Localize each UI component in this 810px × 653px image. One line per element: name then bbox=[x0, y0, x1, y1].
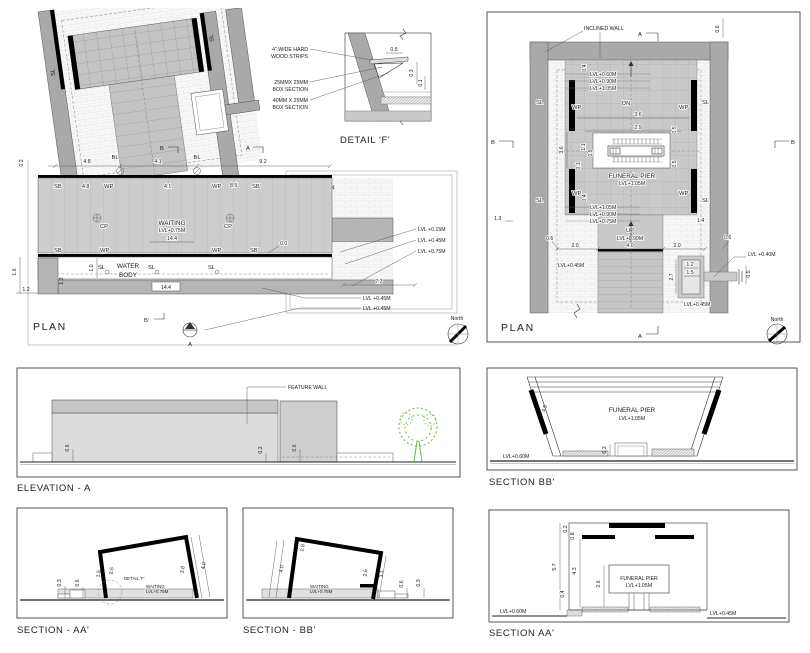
inner-wall-black bbox=[691, 80, 697, 131]
level-label: LVL+0.45M bbox=[558, 263, 584, 269]
level-label: LVL +0.40M bbox=[748, 252, 776, 258]
column-label: BL bbox=[193, 155, 201, 161]
dim-label: 2.6 bbox=[109, 567, 116, 575]
zone-label: BODY bbox=[119, 272, 138, 279]
dim-label: 4.1 bbox=[154, 159, 161, 165]
dim-label: 0.2 bbox=[19, 159, 25, 166]
section-marker-b-left: B bbox=[491, 140, 513, 148]
dim-label: 0.6 bbox=[292, 444, 298, 451]
entry-stairs bbox=[598, 250, 663, 313]
level-label: LVL+1.05M bbox=[619, 181, 645, 187]
note-label: DETAIL 'F' bbox=[124, 576, 145, 581]
dim-label: 0.4 bbox=[582, 64, 588, 71]
roof-lines bbox=[527, 377, 723, 392]
section-aa-view: FUNERAL PIER LVL+1.05M LVL+0.60M LVL+0.4… bbox=[489, 510, 789, 639]
marker-label: B bbox=[491, 140, 495, 146]
dim-label: 0.5 bbox=[390, 47, 397, 53]
elevation-a-view: 0.6 0.3 0.6 FEATURE WALL ELEVATION - A bbox=[17, 368, 460, 494]
feature-wall-block bbox=[280, 401, 337, 462]
dim-label: 3.6 bbox=[634, 112, 641, 118]
level-label: LVL+0.60M bbox=[503, 454, 529, 460]
dim-label: 1.2 bbox=[59, 277, 65, 284]
section-marker-a-bottom: A bbox=[183, 322, 197, 348]
dim-label: 0.3 bbox=[409, 69, 415, 76]
dim-label: 4.0 bbox=[200, 562, 207, 570]
north-label: North bbox=[451, 316, 464, 322]
view-title: ELEVATION - A bbox=[17, 483, 91, 494]
view-title: DETAIL 'F' bbox=[340, 135, 390, 146]
level-label: LVL+0.45M bbox=[684, 302, 710, 308]
level-label: LVL+1.05M bbox=[626, 583, 652, 589]
view-title: SECTION AA' bbox=[489, 628, 554, 639]
dim-label: 0.9 bbox=[588, 149, 594, 156]
left-block bbox=[38, 258, 58, 294]
dim-label: 0.5 bbox=[746, 270, 752, 277]
step bbox=[395, 594, 408, 598]
north-compass: North bbox=[767, 317, 787, 344]
pier-leg bbox=[644, 593, 649, 610]
step bbox=[567, 610, 582, 616]
note-label: 40MM X 25MM bbox=[273, 98, 308, 104]
dim-label: 1.5 bbox=[96, 570, 103, 578]
beam-black-right bbox=[655, 535, 694, 539]
zone-label: FUNERAL PIER bbox=[609, 407, 656, 414]
inclined-wall-section bbox=[348, 33, 392, 121]
slab-right bbox=[332, 218, 393, 242]
floor-slab bbox=[345, 111, 431, 121]
dim-label: 4.8 bbox=[82, 184, 89, 190]
dim-label: 0.6 bbox=[724, 235, 731, 241]
floor-slab-right bbox=[652, 449, 694, 456]
level-label: LVL+0.90M bbox=[590, 79, 616, 85]
zone-label: FUNERAL PIER bbox=[620, 576, 658, 582]
dim-label: 0.4 bbox=[582, 194, 588, 201]
dim-label: 0.3 bbox=[57, 579, 63, 586]
break-mark bbox=[400, 29, 406, 125]
view-title: PLAN bbox=[33, 321, 67, 333]
zone-label: DN bbox=[622, 101, 630, 107]
dim-label: 14.4 bbox=[167, 236, 177, 242]
dim-label: 1.4 bbox=[697, 218, 704, 224]
zone-label: WP bbox=[212, 248, 221, 254]
zone-label: CP bbox=[224, 224, 232, 230]
tilted-structure: SL SL bbox=[38, 0, 269, 204]
zone-label: SB' bbox=[250, 248, 259, 254]
zone-label: SL bbox=[208, 265, 216, 271]
level-label: LVL+0.75M bbox=[159, 228, 185, 234]
dim-label: 3.8 bbox=[179, 566, 186, 574]
dim-label: 2.7 bbox=[669, 273, 675, 280]
zone-label: SL bbox=[702, 198, 710, 204]
zone-label: SL bbox=[148, 265, 156, 271]
note-label: BOX SECTION bbox=[273, 105, 309, 111]
dim-label: 9.2 bbox=[259, 159, 266, 165]
elevation-body bbox=[52, 413, 278, 462]
level-label: LVL +0.75M bbox=[418, 249, 446, 255]
left-inclined-wall bbox=[527, 377, 561, 456]
elevation-roof-band bbox=[52, 400, 278, 413]
inner-wall-black bbox=[691, 169, 697, 213]
view-title: PLAN bbox=[501, 322, 535, 334]
level-label: LVL+1.05M bbox=[619, 416, 645, 422]
floor-slab bbox=[582, 607, 628, 612]
dim-label: 0.0 bbox=[280, 241, 287, 247]
marker-label: A bbox=[188, 342, 192, 348]
drawing-sheet: SL SL 4.8 4.1 9.2 BL BL 0.2 B A bbox=[0, 0, 810, 653]
wall-black-bottom bbox=[38, 254, 332, 257]
dim-label: 2.0 bbox=[673, 243, 680, 249]
zone-label: SB bbox=[54, 248, 62, 254]
zone-label: WP bbox=[572, 105, 581, 111]
level-label: LVL +0.45M bbox=[363, 306, 391, 312]
dim-label: 3.6 bbox=[559, 146, 565, 153]
dim-label: 0.6 bbox=[715, 25, 721, 32]
dim-label: 0.6 bbox=[399, 580, 405, 587]
seat-detail bbox=[360, 584, 374, 588]
marker-label: A bbox=[638, 32, 642, 38]
dim-label: 0.6 bbox=[65, 444, 71, 451]
panel-border bbox=[243, 508, 453, 618]
zone-label: SB' bbox=[252, 184, 261, 190]
note-label: 4" WIDE HARD bbox=[272, 47, 308, 53]
zone-label: WATER bbox=[117, 263, 140, 270]
dim-label: 0.8 bbox=[300, 544, 307, 552]
zone-label: SL bbox=[702, 100, 710, 106]
dim-label: 4.5 bbox=[541, 404, 549, 413]
step bbox=[70, 590, 85, 598]
plan-left-view: SL SL 4.8 4.1 9.2 BL BL 0.2 B A bbox=[12, 0, 468, 348]
level-label: LVL+0.75M bbox=[146, 589, 169, 594]
dim-label: 2.0 bbox=[571, 243, 578, 249]
marker-label: A bbox=[638, 334, 642, 340]
low-platform bbox=[337, 453, 393, 462]
funeral-pier-plan bbox=[593, 133, 670, 168]
dim-label: 2.6 bbox=[363, 569, 370, 577]
dim-label: 0.5 bbox=[672, 126, 678, 133]
detail-f-view: 0.5 0.3 0.1 4" WIDE HARD WOOD STRIPS 25M… bbox=[271, 29, 431, 146]
step bbox=[58, 594, 70, 598]
level-label: LVL+0.45M bbox=[710, 611, 736, 617]
bottom-slab bbox=[58, 280, 393, 294]
dim-label: 1.3 bbox=[494, 216, 501, 222]
zone-label: WP bbox=[572, 191, 581, 197]
north-label: North bbox=[771, 317, 784, 323]
section-aa-small-view: DETAIL 'F' WAITING LVL+0.75M 0.3 0.6 1.5… bbox=[17, 508, 227, 636]
zone-label: WP bbox=[212, 184, 221, 190]
dim-label: 0.2 bbox=[563, 525, 569, 532]
plan-right-view: LVL+0.60M LVL+0.90M LVL+1.05M 0.4 DN SL … bbox=[487, 12, 800, 344]
left-step bbox=[33, 453, 52, 462]
dim-label: 1.1 bbox=[581, 143, 587, 150]
note-label: FEATURE WALL bbox=[288, 385, 327, 391]
note-label: INCLINED WALL bbox=[584, 26, 624, 32]
marker-label: A bbox=[246, 146, 250, 152]
view-title: SECTION - BB' bbox=[243, 625, 316, 636]
zone-label: FUNERAL PIER bbox=[609, 173, 656, 180]
pier-leg bbox=[629, 593, 634, 610]
zone-label: WP bbox=[679, 191, 688, 197]
marker-label: B' bbox=[144, 318, 149, 324]
view-title: SECTION - AA' bbox=[17, 625, 89, 636]
dim-label: 14.4 bbox=[161, 285, 171, 291]
tree bbox=[399, 408, 437, 462]
zone-label: SL bbox=[536, 198, 544, 204]
level-label: LVL+0.75M bbox=[590, 219, 616, 225]
dim-label: 7.3 bbox=[375, 279, 382, 285]
outer-wall-top bbox=[530, 42, 728, 60]
dim-label: 1.2 bbox=[686, 262, 693, 268]
zone-label: SL bbox=[536, 100, 544, 106]
wall-black-top bbox=[38, 175, 332, 178]
level-label: LVL+0.60M bbox=[590, 72, 616, 78]
dim-label: 0.3 bbox=[602, 446, 608, 453]
roof-opening-black bbox=[609, 523, 665, 528]
level-label: LVL+1.05M bbox=[590, 205, 616, 211]
right-wall-black bbox=[704, 390, 719, 434]
water-body bbox=[38, 257, 332, 279]
dim-label: 2.6 bbox=[596, 580, 602, 587]
stair-top-edge bbox=[598, 249, 663, 252]
zone-label: WP bbox=[679, 105, 688, 111]
dim-label: 1.6 bbox=[12, 268, 18, 275]
paving bbox=[332, 242, 393, 280]
zone-label: WP bbox=[104, 184, 113, 190]
level-label: LVL+1.05M bbox=[590, 86, 616, 92]
dim-label: 0.5 bbox=[672, 160, 678, 167]
column-label: BL bbox=[111, 155, 119, 161]
level-label: LVL +0.45M bbox=[418, 238, 446, 244]
zone-label: WAITING bbox=[158, 220, 185, 227]
dim-label: 0.3 bbox=[258, 446, 264, 453]
dim-label: 4.0 bbox=[626, 243, 633, 249]
level-label: LVL+0.90M bbox=[617, 236, 643, 242]
section-marker-b-bottom: B' bbox=[144, 313, 164, 324]
marker-label: B bbox=[791, 140, 795, 146]
level-label: LVL +0.15M bbox=[418, 227, 446, 233]
dim-label: 0.6 bbox=[75, 579, 81, 586]
outer-wall-left bbox=[530, 42, 548, 313]
note-label: BOX SECTION bbox=[273, 87, 309, 93]
section-marker-a-bottom: A bbox=[638, 326, 658, 340]
dim-label: 0.4 bbox=[560, 590, 566, 597]
view-title: SECTION BB' bbox=[489, 477, 555, 488]
box-section-bracket bbox=[374, 63, 403, 78]
section-marker-b-right: B bbox=[775, 140, 795, 148]
dim-label: 1.5 bbox=[686, 270, 693, 276]
side-platform bbox=[191, 89, 229, 135]
level-label: LVL+0.75M bbox=[310, 589, 333, 594]
dim-label: 4.3 bbox=[572, 567, 578, 574]
dim-label: 1.2 bbox=[22, 287, 29, 293]
floor-slab bbox=[650, 607, 700, 612]
dim-label: 3.1 bbox=[379, 570, 386, 578]
dim-label: 0.1 bbox=[576, 162, 582, 169]
north-compass: North bbox=[448, 316, 468, 344]
zone-label: WP bbox=[100, 248, 109, 254]
level-label: LVL+0.90M bbox=[590, 212, 616, 218]
level-label: LVL +0.45M bbox=[363, 296, 391, 302]
step bbox=[378, 591, 395, 598]
dim-label: 4.1 bbox=[164, 184, 171, 190]
dim-label: 0.1 bbox=[418, 79, 424, 86]
dim-label: 5.7 bbox=[552, 563, 558, 570]
zone-label: SB bbox=[54, 184, 62, 190]
dim-label: 4.0 bbox=[279, 565, 286, 573]
zone-label: UP bbox=[626, 228, 634, 234]
right-inclined-wall bbox=[689, 377, 723, 456]
beam-black-left bbox=[582, 535, 615, 539]
bench bbox=[615, 443, 647, 456]
marker-label: B bbox=[160, 146, 164, 152]
dim-label: 0.3 bbox=[416, 579, 422, 586]
paving bbox=[332, 178, 393, 218]
floor-screed bbox=[381, 97, 431, 104]
section-bb-view: 0.3 FUNERAL PIER LVL+1.05M LVL+0.60M 4.5… bbox=[487, 368, 797, 488]
dim-label: 0.8 bbox=[570, 532, 576, 539]
dim-label: 4.8 bbox=[83, 159, 90, 165]
note-label: 25MMX 25MM bbox=[274, 80, 308, 86]
level-label: LVL+0.60M bbox=[500, 609, 526, 615]
dim-label: 8.5 bbox=[230, 183, 237, 189]
zone-label: CP bbox=[100, 224, 108, 230]
note-label: WOOD STRIPS bbox=[271, 54, 308, 60]
section-bb-small-view: WAITING LVL+0.75M 4.0 0.8 2.6 3.1 0.6 0.… bbox=[243, 508, 453, 636]
architectural-sheet: SL SL 4.8 4.1 9.2 BL BL 0.2 B A bbox=[0, 0, 810, 653]
section-marker-a-top: A bbox=[638, 32, 658, 41]
dim-label: 1.0 bbox=[89, 264, 95, 271]
dim-label: 2.9 bbox=[634, 125, 641, 131]
zone-label: SL bbox=[98, 265, 106, 271]
